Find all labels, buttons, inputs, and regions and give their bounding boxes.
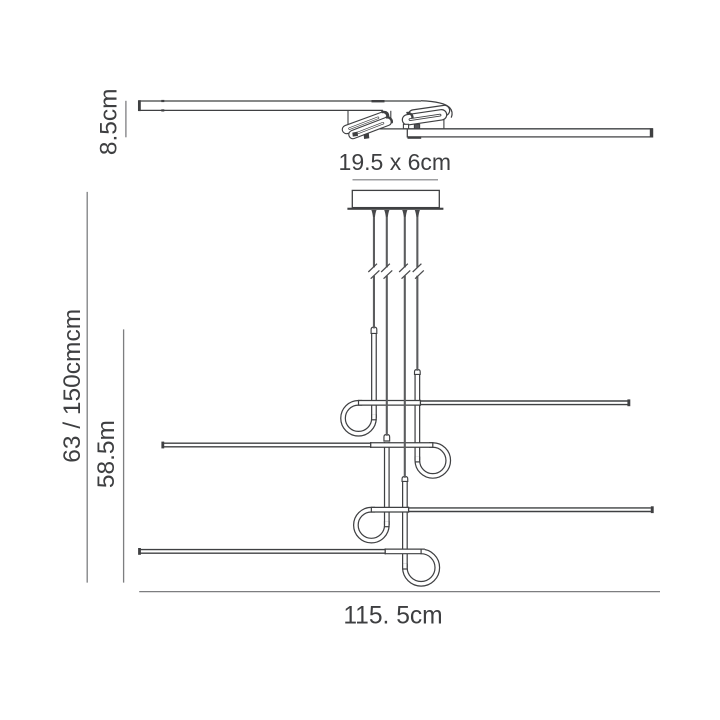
svg-text:58.5m: 58.5m bbox=[93, 420, 120, 488]
svg-text:19.5 x 6cm: 19.5 x 6cm bbox=[339, 149, 452, 175]
svg-text:115. 5cm: 115. 5cm bbox=[343, 603, 442, 630]
svg-text:8.5cm: 8.5cm bbox=[95, 88, 122, 155]
svg-text:63 / 150cmcm: 63 / 150cmcm bbox=[59, 309, 86, 463]
